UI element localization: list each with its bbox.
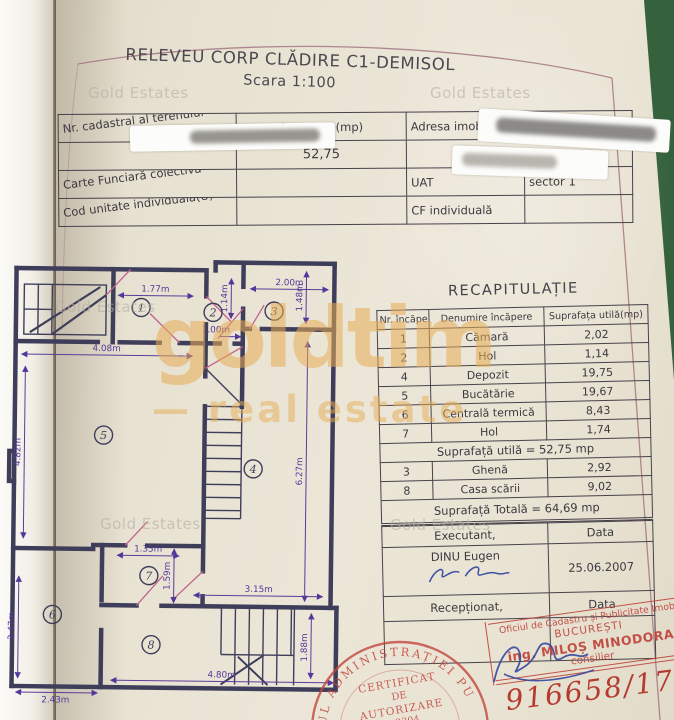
dimension-label: 1.77m <box>141 285 169 295</box>
dimension-label: 1.35m <box>134 544 162 554</box>
carte-funciara-cell: Carte Funciară colectivă <box>59 169 237 198</box>
executant-name-cell: DINU Eugen <box>382 544 549 597</box>
dimension-label: 1.00m <box>202 325 230 335</box>
room-number-5: 5 <box>94 426 112 444</box>
cod-unitate-cell: Cod unitate individuală(U) <box>59 197 237 226</box>
round-stamp-line2: DE <box>391 690 408 703</box>
stairs-middle <box>204 368 243 518</box>
col-header-name: Denumire încăpere <box>429 307 544 329</box>
room-number-1: 1 <box>132 298 150 316</box>
scanned-document-photo: RELEVEU CORP CLĂDIRE C1-DEMISOL Scara 1:… <box>0 0 674 720</box>
svg-text:1: 1 <box>138 301 145 314</box>
room-number-7: 7 <box>140 567 158 585</box>
svg-text:7: 7 <box>145 570 152 583</box>
room-number-3: 3 <box>265 302 283 320</box>
dimension-label: 1.59m <box>163 562 173 590</box>
cf-label-cell: CF individuală <box>407 195 525 224</box>
round-stamp: UL ADMINISTRAȚIEI PU CERTIFICAT DE AUTOR… <box>300 626 500 720</box>
cf-value-cell <box>525 194 633 223</box>
room-number-6: 6 <box>43 605 61 623</box>
room-number-8: 8 <box>142 636 160 654</box>
redaction-address-2 <box>452 145 609 179</box>
recap-table: Nr. încăpere Denumire încăpere Suprafața… <box>376 304 653 526</box>
svg-text:3: 3 <box>271 305 278 318</box>
executant-signature <box>421 562 512 590</box>
svg-text:8: 8 <box>147 639 154 652</box>
redaction-cadastral-number <box>130 122 335 152</box>
svg-text:6: 6 <box>49 608 56 621</box>
official-signature <box>486 630 616 700</box>
door-swing-lines <box>102 269 264 607</box>
dimension-label: 4.80m <box>208 670 236 680</box>
room-number-4: 4 <box>244 460 262 478</box>
svg-text:5: 5 <box>100 429 107 442</box>
svg-text:2: 2 <box>208 306 216 319</box>
dimension-label: 3.15m <box>245 585 273 595</box>
plan-walls <box>6 260 340 690</box>
dimension-label: 1.48m <box>295 283 305 311</box>
dimension-label: 4.82m <box>13 438 23 466</box>
dimension-label: 4.08m <box>92 344 120 354</box>
cod-unitate-value-cell <box>237 196 407 225</box>
carte-funciara-value-cell <box>237 168 407 197</box>
executant-date: 25.06.2007 <box>548 541 654 592</box>
dimension-label: 6.27m <box>295 457 305 485</box>
dimension-label: 2.43m <box>41 695 69 705</box>
data-label: Data <box>548 520 653 543</box>
dimension-label: 3.47m <box>7 612 17 640</box>
col-header-area: Suprafața utilă(mp) <box>544 305 648 326</box>
stairs-top-left <box>24 284 107 335</box>
svg-text:4: 4 <box>249 463 257 476</box>
col-header-nr: Nr. încăpere <box>377 309 429 329</box>
